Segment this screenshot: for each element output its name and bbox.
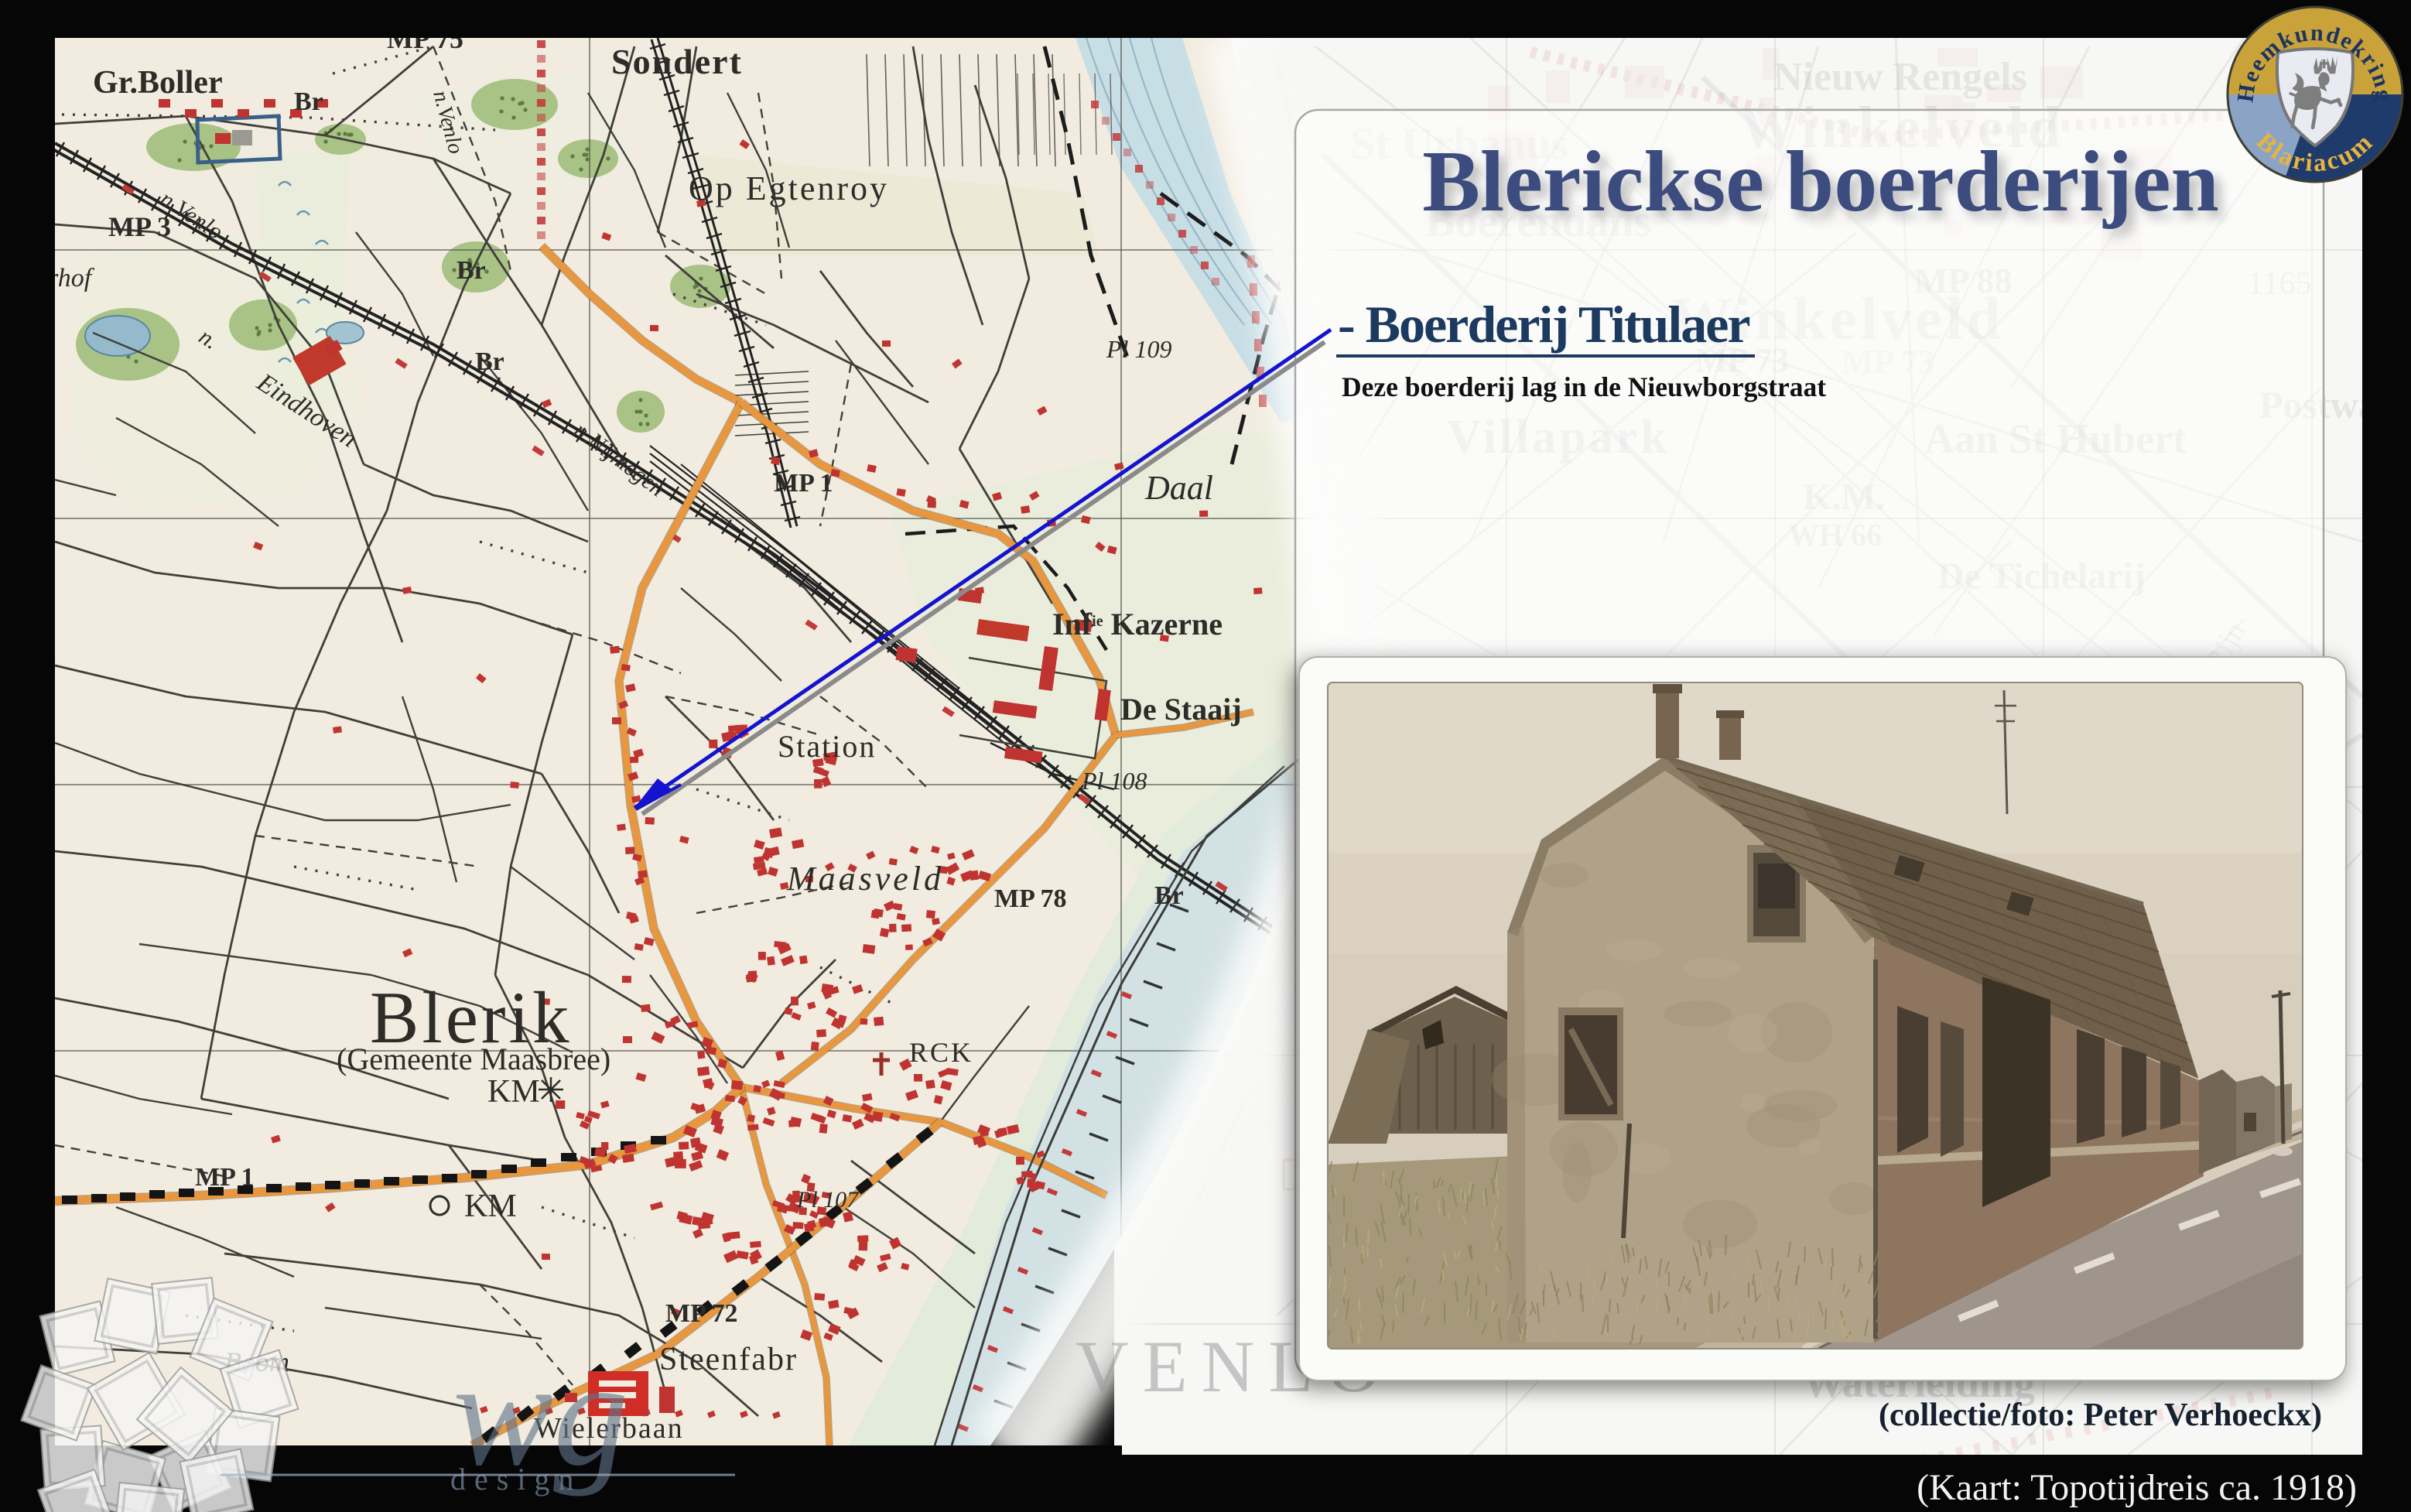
svg-text:Blerickse boerderijen: Blerickse boerderijen (1422, 134, 2219, 230)
svg-text:Op Egtenroy: Op Egtenroy (689, 169, 889, 207)
svg-text:MP 1: MP 1 (195, 1163, 254, 1192)
svg-text:MP 1: MP 1 (774, 469, 833, 498)
svg-text:De Staaij: De Staaij (1120, 692, 1242, 727)
svg-text:KM: KM (464, 1189, 517, 1224)
svg-text:KM: KM (487, 1074, 540, 1110)
svg-text:MP 3: MP 3 (108, 211, 171, 242)
svg-text:Station: Station (778, 729, 876, 764)
svg-text:Sondert: Sondert (611, 42, 743, 81)
svg-text:Nieuw Rengels: Nieuw Rengels (1773, 55, 2027, 99)
svg-text:RCK: RCK (909, 1037, 973, 1068)
svg-text:(collectie/foto: Peter Verhoec: (collectie/foto: Peter Verhoeckx) (1879, 1397, 2322, 1433)
svg-text:Pl 108: Pl 108 (1081, 767, 1147, 795)
svg-text:Infie Kazerne: Infie Kazerne (1052, 607, 1223, 641)
svg-text:Maasveld: Maasveld (786, 860, 944, 898)
svg-text:MP 72: MP 72 (665, 1299, 737, 1328)
svg-text:Pl 109: Pl 109 (1106, 335, 1171, 363)
svg-text:(Gemeente Maasbree): (Gemeente Maasbree) (337, 1042, 610, 1076)
svg-text:Pl 107: Pl 107 (796, 1187, 860, 1213)
svg-text:Br: Br (457, 256, 486, 285)
svg-text:- Boerderij Titulaer: - Boerderij Titulaer (1338, 295, 1749, 354)
svg-text:MP 78: MP 78 (994, 884, 1066, 913)
svg-text:Br: Br (475, 347, 504, 376)
svg-text:Br: Br (294, 87, 323, 116)
svg-text:Deze boerderij lag in de Nieuw: Deze boerderij lag in de Nieuwborgstraat (1342, 371, 1826, 402)
svg-text:Gr.Boller: Gr.Boller (93, 65, 223, 101)
svg-text:Daal: Daal (1144, 469, 1213, 507)
svg-text:(Kaart: Topotijdreis ca. 1918): (Kaart: Topotijdreis ca. 1918) (1917, 1467, 2357, 1508)
svg-text:Br: Br (1154, 881, 1184, 910)
svg-text:design: design (450, 1462, 582, 1497)
svg-text:Steenfabr: Steenfabr (659, 1342, 798, 1377)
